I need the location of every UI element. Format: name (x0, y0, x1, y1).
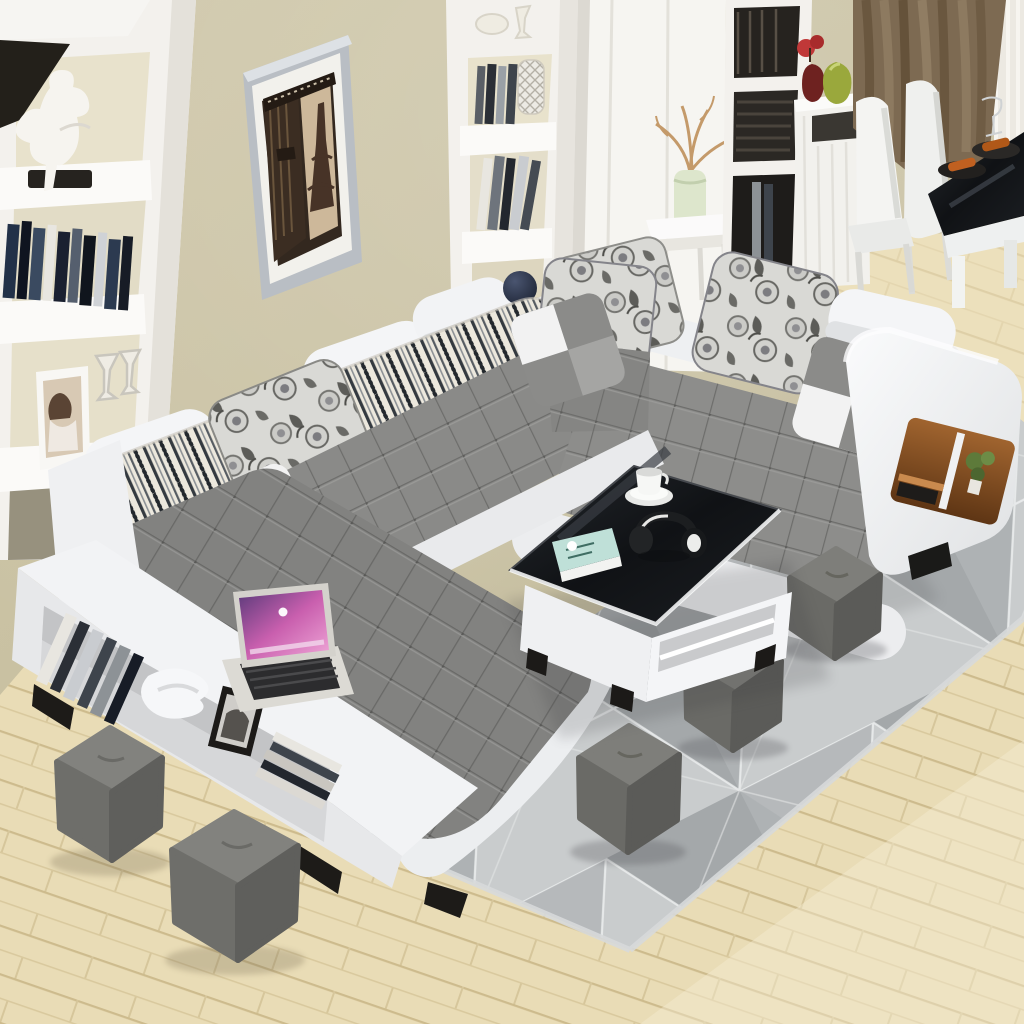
eiffel-tower-print (243, 35, 362, 300)
lattice-vase (518, 60, 544, 114)
living-room-photo (0, 0, 1024, 1024)
laptop-logo (279, 608, 288, 617)
scene-canvas (0, 0, 1024, 1024)
portrait-photo-frame (36, 366, 90, 470)
green-glass-vase (823, 62, 851, 104)
